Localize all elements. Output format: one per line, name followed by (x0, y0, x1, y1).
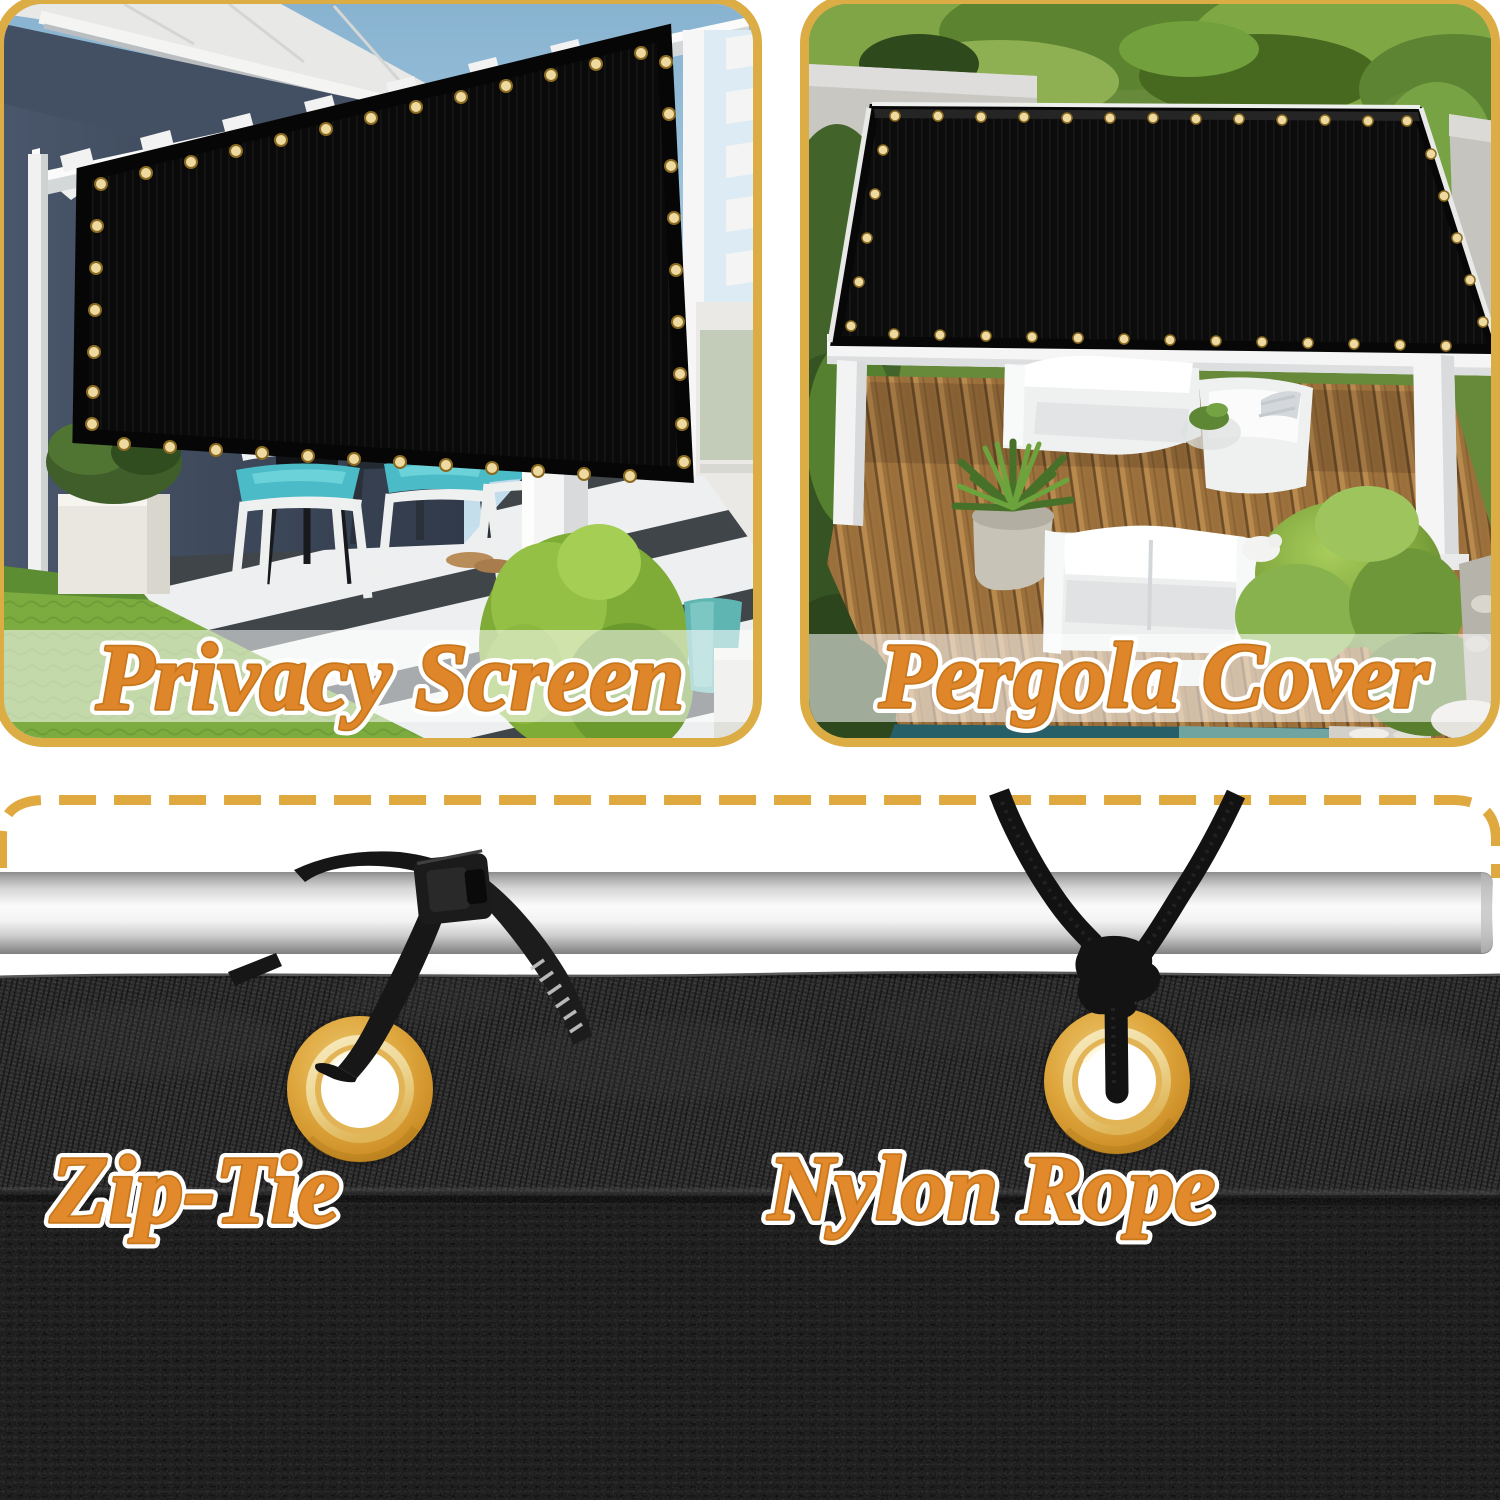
svg-text:Privacy Screen: Privacy Screen (95, 624, 684, 730)
svg-text:Nylon Rope: Nylon Rope (767, 1137, 1215, 1239)
svg-text:Pergola Cover: Pergola Cover (878, 625, 1430, 728)
svg-text:Zip-Tie: Zip-Tie (49, 1136, 340, 1243)
